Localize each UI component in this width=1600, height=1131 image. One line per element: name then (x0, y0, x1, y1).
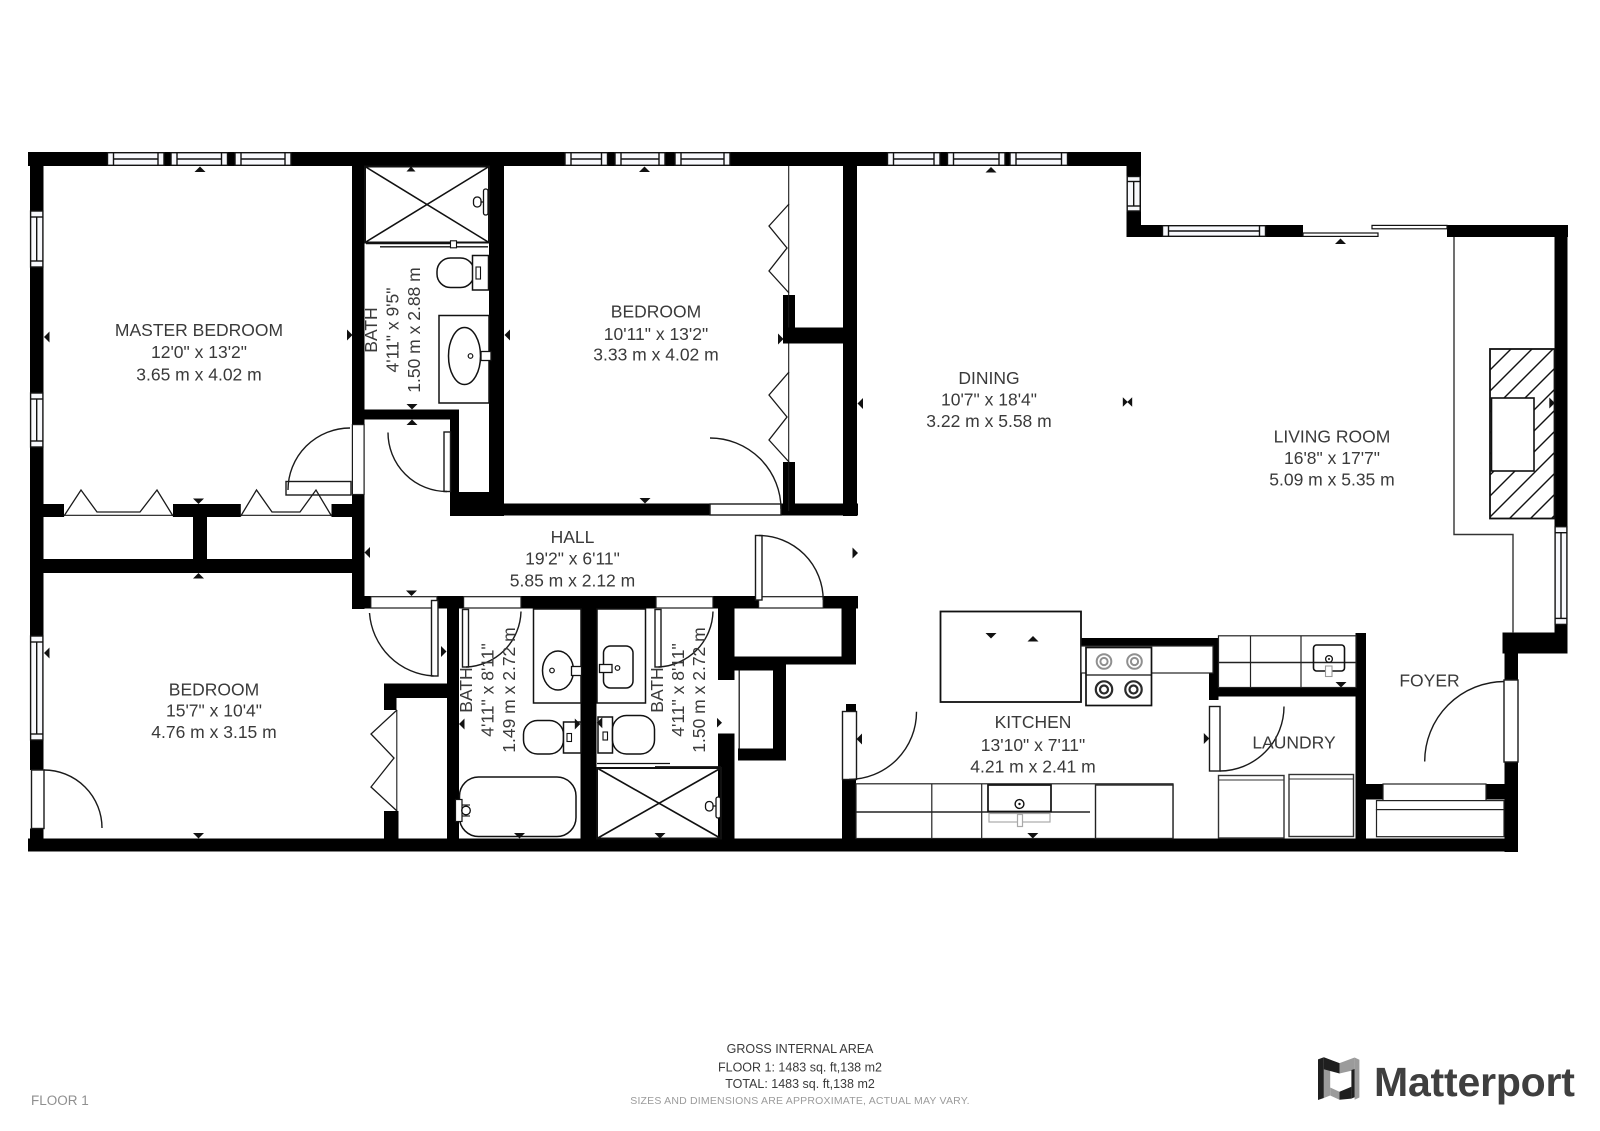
svg-text:13'10" x 7'11": 13'10" x 7'11" (981, 735, 1085, 755)
svg-text:GROSS INTERNAL AREA: GROSS INTERNAL AREA (727, 1042, 874, 1056)
svg-text:1.50 m x 2.88 m: 1.50 m x 2.88 m (404, 267, 424, 392)
svg-text:10'7" x 18'4": 10'7" x 18'4" (941, 390, 1037, 410)
svg-text:16'8" x 17'7": 16'8" x 17'7" (1284, 448, 1380, 468)
svg-text:4'11" x 8'11": 4'11" x 8'11" (478, 643, 498, 736)
svg-text:SIZES AND DIMENSIONS ARE APPRO: SIZES AND DIMENSIONS ARE APPROXIMATE, AC… (630, 1095, 970, 1107)
svg-text:BATH: BATH (361, 307, 381, 352)
svg-text:10'11" x 13'2": 10'11" x 13'2" (604, 324, 708, 344)
svg-text:TOTAL: 1483 sq. ft,138 m2: TOTAL: 1483 sq. ft,138 m2 (725, 1077, 875, 1091)
svg-text:Matterport: Matterport (1374, 1059, 1575, 1105)
svg-text:5.85 m x 2.12 m: 5.85 m x 2.12 m (510, 571, 635, 591)
svg-text:MASTER BEDROOM: MASTER BEDROOM (115, 320, 283, 340)
svg-text:LAUNDRY: LAUNDRY (1252, 733, 1336, 753)
svg-text:KITCHEN: KITCHEN (995, 712, 1072, 732)
svg-text:1.50 m x 2.72 m: 1.50 m x 2.72 m (689, 627, 709, 752)
svg-text:1.49 m x 2.72 m: 1.49 m x 2.72 m (499, 627, 519, 752)
svg-text:BATH: BATH (456, 667, 476, 712)
svg-text:BEDROOM: BEDROOM (169, 680, 259, 700)
svg-text:12'0" x 13'2": 12'0" x 13'2" (151, 342, 247, 362)
svg-text:5.09 m x 5.35 m: 5.09 m x 5.35 m (1269, 470, 1394, 490)
svg-text:DINING: DINING (958, 368, 1019, 388)
svg-text:4.21 m x 2.41 m: 4.21 m x 2.41 m (970, 757, 1095, 777)
svg-text:FLOOR 1: FLOOR 1 (31, 1093, 89, 1108)
svg-text:4.76 m x 3.15 m: 4.76 m x 3.15 m (151, 722, 276, 742)
svg-text:3.65 m x 4.02 m: 3.65 m x 4.02 m (136, 365, 261, 385)
svg-text:3.22 m x 5.58 m: 3.22 m x 5.58 m (926, 411, 1051, 431)
svg-text:BATH: BATH (647, 667, 667, 712)
svg-text:4'11" x 8'11": 4'11" x 8'11" (668, 643, 688, 736)
svg-text:HALL: HALL (551, 527, 595, 547)
svg-text:19'2" x 6'11": 19'2" x 6'11" (525, 549, 620, 569)
svg-text:FOYER: FOYER (1399, 671, 1459, 691)
svg-text:3.33 m x 4.02 m: 3.33 m x 4.02 m (593, 345, 718, 365)
svg-text:LIVING ROOM: LIVING ROOM (1274, 427, 1391, 447)
svg-text:FLOOR 1: 1483 sq. ft,138 m2: FLOOR 1: 1483 sq. ft,138 m2 (718, 1061, 882, 1075)
svg-text:BEDROOM: BEDROOM (611, 302, 701, 322)
svg-text:15'7" x 10'4": 15'7" x 10'4" (166, 701, 262, 721)
svg-text:4'11" x 9'5": 4'11" x 9'5" (383, 288, 403, 373)
